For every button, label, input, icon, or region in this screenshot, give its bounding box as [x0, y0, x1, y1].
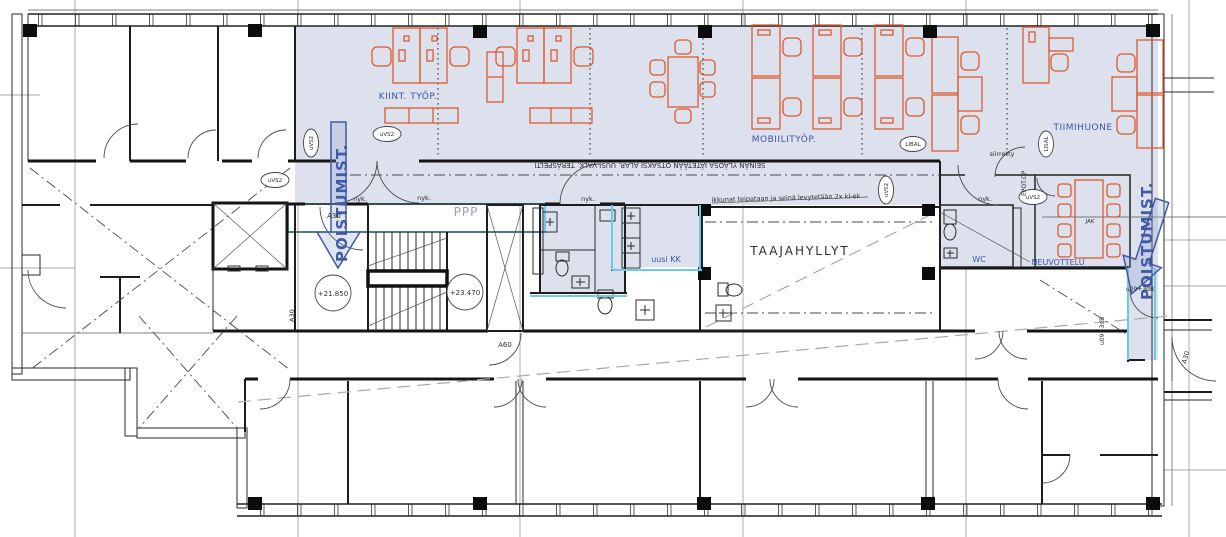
- nyk-label: nyk.: [353, 195, 367, 203]
- door-label-u09: u09+3dB: [1126, 286, 1154, 293]
- svg-text:LIBAL: LIBAL: [905, 142, 921, 148]
- jak-label: JAK: [1085, 219, 1095, 225]
- uvs2-tag: uVS2: [261, 173, 289, 188]
- door-label-epot: EPOT.OP: [1021, 170, 1028, 196]
- svg-text:+21.850: +21.850: [318, 290, 348, 298]
- door-label-a60: A60: [498, 341, 512, 349]
- level-marker-right: +23.470: [447, 274, 483, 310]
- exit-label: POISTUMIST.: [1138, 181, 1156, 300]
- room-label-mobiilityop: MOBIILITYÖP.: [752, 134, 816, 145]
- door-label-a30: A30: [1180, 350, 1191, 364]
- floor-plan-svg: POISTUMIST. POISTUMIST. uVS2 uVS2 uVS2 u…: [0, 0, 1226, 537]
- window-band-top: [28, 10, 1158, 26]
- room-label-wc: WC: [972, 255, 986, 264]
- svg-text:uVS2: uVS2: [1026, 195, 1040, 201]
- room-label-taajahyllyt: TAAJAHYLLYT: [749, 244, 849, 258]
- stairs: [368, 232, 447, 331]
- room-label-tiimihuone: TIIMIHUONE: [1052, 123, 1112, 133]
- room-label-kiint-tyop: KIINT. TYÖP.: [379, 91, 438, 102]
- door-label-u09: u09+3dB: [1099, 317, 1106, 345]
- uvs2-tag: uVS2: [879, 176, 894, 204]
- svg-text:uVS2: uVS2: [268, 178, 282, 184]
- door-label-a30: A30: [288, 309, 296, 322]
- exit-label: POISTUMIST.: [333, 143, 351, 262]
- elevator: [213, 203, 287, 271]
- ppp-label: PPP: [454, 205, 479, 219]
- svg-text:uVS2: uVS2: [380, 132, 394, 138]
- nyk-label: nyk.: [581, 195, 595, 203]
- uvs2-tag: uVS2: [304, 129, 319, 157]
- room-label-neuvottelu: NEUVOTTELU: [1031, 258, 1084, 267]
- lisal-tag: LISÄL: [1039, 131, 1054, 157]
- floor-plan-drawing: POISTUMIST. POISTUMIST. uVS2 uVS2 uVS2 u…: [0, 0, 1226, 537]
- uvs2-tag: uVS2: [373, 127, 401, 142]
- nyk-label: nyk.: [978, 195, 992, 203]
- shaft: [487, 205, 523, 331]
- stair-handrail: [368, 271, 447, 286]
- nyk-label: nyk.: [417, 194, 431, 202]
- siirretty-label: siirretty: [989, 150, 1014, 158]
- svg-text:uVS2: uVS2: [309, 136, 315, 150]
- svg-text:LISÄL: LISÄL: [1043, 136, 1050, 152]
- room-label-uusi-kk: uusi KK: [651, 255, 681, 264]
- svg-text:uVS2: uVS2: [884, 183, 890, 197]
- level-marker-left: +21.850: [315, 275, 351, 311]
- libal-tag: LIBAL: [900, 137, 926, 152]
- door-label-a30: A30: [327, 212, 341, 220]
- svg-text:+23.470: +23.470: [450, 289, 480, 297]
- note-top-rotated: SEINÄN YLÄOSA JÄTETÄÄN OTSAKSI ALAR. UUS…: [534, 161, 765, 170]
